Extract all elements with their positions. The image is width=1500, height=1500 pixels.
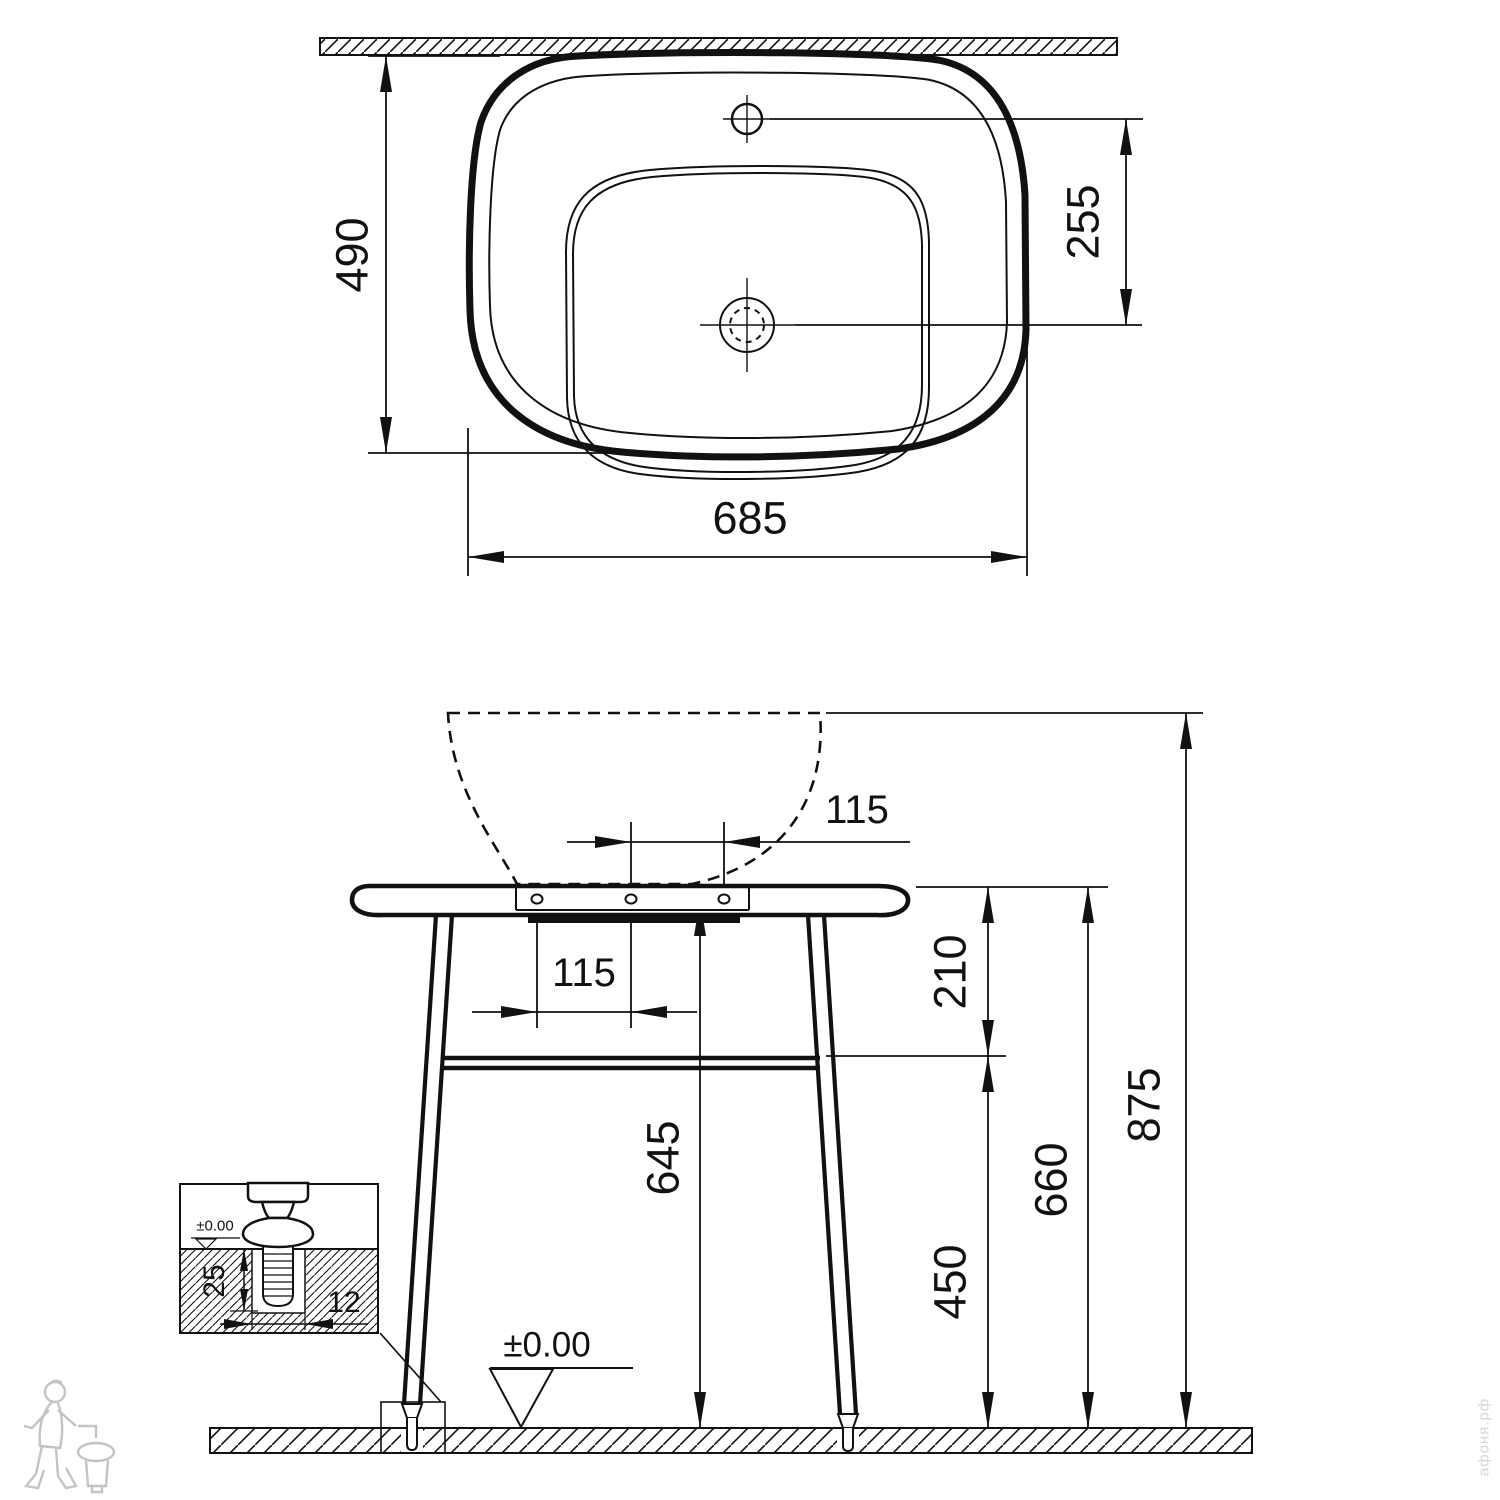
anchor-stud	[263, 1247, 293, 1306]
stand-legs	[404, 915, 856, 1414]
dim-450	[982, 1056, 994, 1428]
dim-660	[1082, 887, 1094, 1428]
leg-end-cap	[248, 1183, 308, 1202]
dim-875	[1180, 713, 1192, 1428]
datum-label-inset: ±0.00	[196, 1219, 233, 1234]
detail-leader-line	[380, 1333, 441, 1402]
dim-490	[368, 56, 614, 453]
dim-label-25: 25	[200, 1264, 230, 1297]
faucet-hole-icon	[723, 95, 771, 143]
foot-neck	[262, 1202, 294, 1218]
dim-label-depth-490: 490	[330, 217, 375, 292]
drain-icon	[700, 278, 795, 372]
dim-label-drain-255: 255	[1061, 184, 1106, 259]
technical-drawing-page: 490 685 255 115 115 210 645 450 660 875 …	[0, 0, 1500, 1500]
washbasin-bowl-dashed	[448, 713, 821, 884]
dim-label-875: 875	[1122, 1067, 1167, 1142]
dim-label-660: 660	[1029, 1142, 1074, 1217]
mount-hole-left	[532, 895, 543, 904]
dim-label-450: 450	[928, 1244, 973, 1319]
mount-bracket	[528, 915, 740, 923]
watermark-logo	[24, 1381, 114, 1492]
datum-level-main	[490, 1368, 633, 1427]
dim-label-115-lower: 115	[552, 953, 616, 993]
mount-hole-center	[626, 895, 637, 904]
dim-label-645: 645	[641, 1120, 686, 1195]
foot-collar	[243, 1218, 313, 1247]
dim-label-width-685: 685	[712, 496, 787, 541]
mount-hole-right	[719, 895, 730, 904]
stand-shelf	[441, 1058, 820, 1068]
dim-label-12: 12	[327, 1288, 360, 1318]
dim-label-210: 210	[928, 934, 973, 1009]
dim-label-115-upper: 115	[825, 790, 889, 830]
watermark-site-text: афоня.рф	[1476, 1398, 1493, 1476]
dim-210	[982, 887, 994, 1056]
floor-section	[210, 1428, 1252, 1453]
datum-label-main: ±0.00	[503, 1328, 590, 1363]
